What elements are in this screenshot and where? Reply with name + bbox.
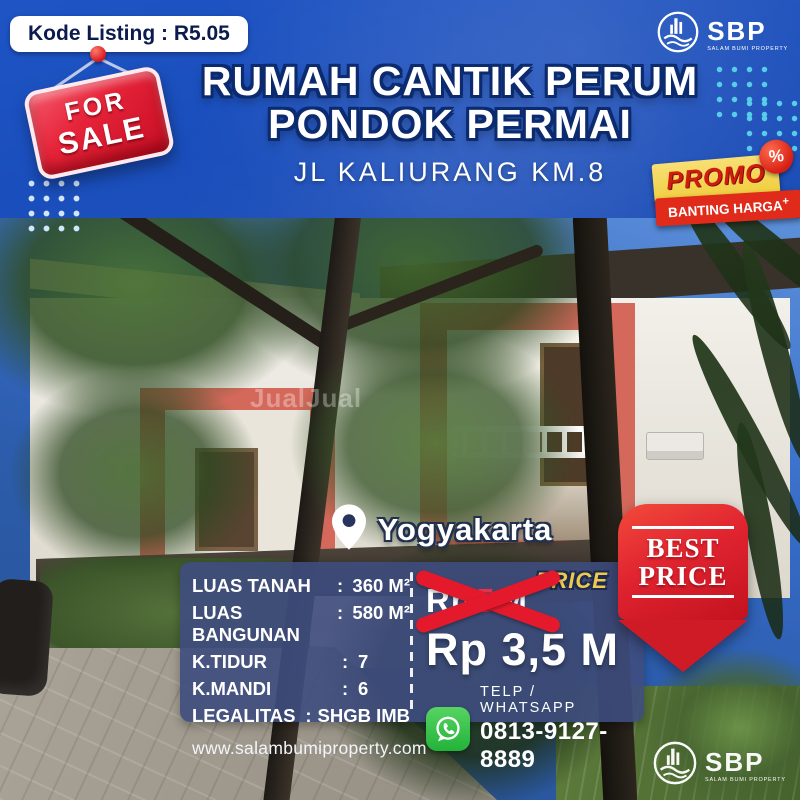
detail-label: LEGALITAS <box>192 705 305 727</box>
detail-value: SHGB IMB <box>318 705 411 727</box>
title-line-1: RUMAH CANTIK PERUM <box>150 60 750 103</box>
sbp-logo-icon <box>652 740 698 791</box>
detail-label: LUAS TANAH <box>192 575 337 597</box>
brand-tagline: SALAM BUMI PROPERTY <box>705 777 786 783</box>
detail-colon: : <box>337 602 352 624</box>
detail-colon: : <box>342 678 358 700</box>
contact-phone: 0813-9127-8889 <box>480 718 636 774</box>
detail-value: 7 <box>358 651 410 673</box>
photo-watermark: JualJual <box>250 383 362 414</box>
ribbon-body: BEST PRICE <box>618 504 748 620</box>
brand-logo-top: SBP SALAM BUMI PROPERTY <box>656 10 788 59</box>
website-url: www.salambumiproperty.com <box>192 738 410 759</box>
detail-value: 360 M² <box>352 575 410 597</box>
detail-row-kamar-tidur: K.TIDUR : 7 <box>192 648 410 675</box>
detail-row-luas-bangunan: LUAS BANGUNAN : 580 M² <box>192 599 410 648</box>
contact-label: TELP / WHATSAPP <box>480 684 636 716</box>
old-price: Rp5M <box>426 582 528 620</box>
title-line-2: PONDOK PERMAI <box>150 103 750 146</box>
sign-pin <box>90 46 106 62</box>
detail-colon: : <box>305 705 317 727</box>
detail-row-legalitas: LEGALITAS : SHGB IMB <box>192 702 410 729</box>
detail-colon: : <box>337 575 352 597</box>
ribbon-line1: BEST <box>634 534 732 562</box>
detail-row-luas-tanah: LUAS TANAH : 360 M² <box>192 572 410 599</box>
flyer-poster: Kode Listing : R5.05 SBP SALAM BUMI PROP… <box>0 0 800 800</box>
detail-row-kamar-mandi: K.MANDI : 6 <box>192 675 410 702</box>
location-city: Yogyakarta <box>378 512 553 548</box>
promo-sub-plus: + <box>782 195 789 207</box>
detail-label: LUAS BANGUNAN <box>192 602 337 646</box>
parked-motorbike <box>0 578 54 697</box>
ac-unit <box>646 432 704 460</box>
promo-badge: PROMO % + BANTING HARGA+ <box>652 152 800 228</box>
listing-code-badge: Kode Listing : R5.05 <box>10 16 248 52</box>
price-block: PRICE Rp5M Rp 3,5 M TELP / WHATSAPP 081 <box>426 568 636 774</box>
ribbon-line2: PRICE <box>634 562 732 590</box>
new-price: Rp 3,5 M <box>426 624 636 676</box>
brand-abbr: SBP <box>707 18 788 44</box>
detail-colon: : <box>342 651 358 673</box>
brand-logo-bottom: SBP SALAM BUMI PROPERTY <box>652 740 786 791</box>
sbp-logo-icon <box>656 10 700 59</box>
location-pin-icon <box>332 504 366 555</box>
detail-value: 580 M² <box>352 602 410 624</box>
detail-label: K.TIDUR <box>192 651 342 673</box>
best-price-ribbon: BEST PRICE <box>618 504 748 672</box>
details-list: LUAS TANAH : 360 M² LUAS BANGUNAN : 580 … <box>192 572 410 759</box>
brand-abbr: SBP <box>705 749 786 775</box>
brand-tagline: SALAM BUMI PROPERTY <box>707 46 788 52</box>
details-panel: LUAS TANAH : 360 M² LUAS BANGUNAN : 580 … <box>180 562 644 722</box>
detail-value: 6 <box>358 678 410 700</box>
contact-row: TELP / WHATSAPP 0813-9127-8889 <box>426 684 636 774</box>
dot-grid-left <box>24 176 86 236</box>
dashed-divider <box>410 572 413 712</box>
promo-sub-label: BANTING HARGA <box>668 198 783 220</box>
detail-label: K.MANDI <box>192 678 342 700</box>
whatsapp-icon <box>426 707 470 751</box>
ribbon-arrow <box>618 620 748 672</box>
